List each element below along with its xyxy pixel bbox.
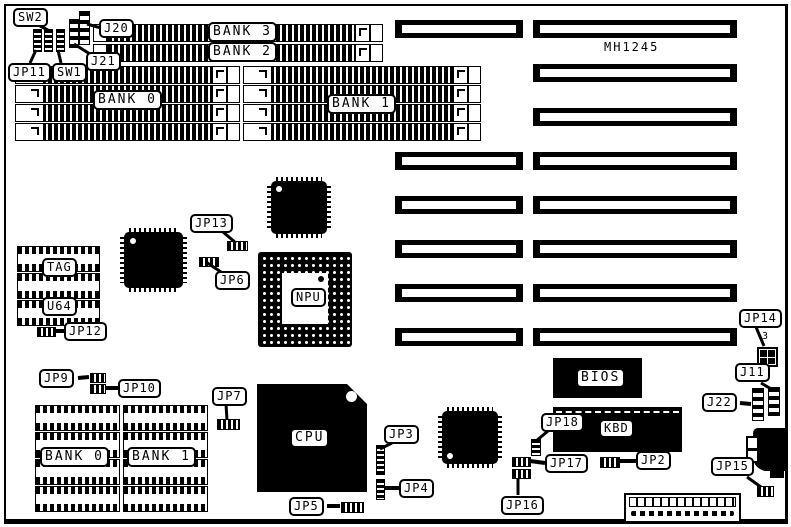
jumper-pad: [760, 350, 767, 357]
isa-slot-key: [402, 25, 516, 33]
qfp-pins: [327, 186, 331, 229]
pin1-dot: [276, 186, 282, 192]
isa-slot-key: [402, 157, 516, 165]
isa-slot-short-1: [395, 20, 523, 38]
callout-j11: J11: [735, 363, 770, 382]
jumper-jp16-pins: [512, 469, 531, 479]
jumper-jp4-pins: [376, 479, 385, 500]
isa-slot-key: [540, 245, 730, 253]
isa-slot-key: [540, 201, 730, 209]
dip-chip-row: [123, 486, 208, 512]
motherboard-diagram: MH1245 BANK 3 BANK 2 BANK 0 BANK 1 SW2 J…: [0, 0, 791, 527]
label-bank3: BANK 3: [208, 22, 277, 42]
callout-jp2: JP2: [636, 451, 671, 470]
isa-slot-long-2: [533, 64, 737, 82]
isa-slot-key: [402, 333, 516, 341]
callout-j20: J20: [99, 19, 134, 38]
callout-jp12: JP12: [64, 322, 107, 341]
power-solder-dots: [631, 511, 734, 516]
callout-jp7: JP7: [212, 387, 247, 406]
callout-sw2: SW2: [13, 8, 48, 27]
jumper-jp13-pins: [227, 241, 248, 251]
pin1-dot: [130, 238, 136, 244]
label-kbd: KBD: [599, 419, 634, 438]
label-tag: TAG: [42, 258, 77, 277]
pin1-dot: [346, 391, 357, 402]
jp14-pin3-text: 3: [762, 331, 770, 342]
callout-jp15: JP15: [711, 457, 754, 476]
callout-jp17: JP17: [545, 454, 588, 473]
isa-slot-key: [540, 113, 730, 121]
isa-slot-long-7: [533, 284, 737, 302]
label-bank2: BANK 2: [208, 42, 277, 62]
simm-end-cap: [226, 105, 239, 121]
callout-sw1: SW1: [52, 63, 87, 82]
simm-slot-bank0-row4: [15, 123, 240, 141]
callout-jp10: JP10: [118, 379, 161, 398]
callout-j22: J22: [702, 393, 737, 412]
qfp-pins: [183, 237, 187, 283]
din-pin-tab: [746, 436, 759, 450]
dip-chip-row: [35, 486, 120, 512]
isa-slot-long-4: [533, 152, 737, 170]
jumper-jp6-pins: [199, 257, 219, 267]
simm-latch: [256, 105, 273, 121]
simm-end-cap: [226, 124, 239, 140]
simm-latch: [28, 86, 45, 102]
pin1-dot: [447, 453, 453, 459]
callout-jp11: JP11: [8, 63, 51, 82]
isa-slot-key: [402, 201, 516, 209]
callout-jp3: JP3: [384, 425, 419, 444]
callout-jp18: JP18: [541, 413, 584, 432]
callout-jp16: JP16: [501, 496, 544, 515]
isa-slot-long-1: [533, 20, 737, 38]
jumper-jp5-pins: [341, 502, 364, 513]
isa-slot-long-5: [533, 196, 737, 214]
jumper-jp15-pins: [757, 486, 774, 497]
jumper-jp2-pins: [600, 457, 620, 468]
isa-slot-key: [540, 289, 730, 297]
label-cpu: CPU: [290, 428, 329, 448]
callout-jp13: JP13: [190, 214, 233, 233]
isa-slot-key: [402, 289, 516, 297]
label-bank0-top: BANK 0: [93, 90, 162, 110]
simm-end-cap: [467, 105, 480, 121]
isa-slot-key: [540, 69, 730, 77]
label-u64: U64: [42, 297, 77, 316]
isa-slot-short-3: [395, 196, 523, 214]
simm-latch: [256, 67, 273, 83]
qfp-pins: [498, 416, 502, 459]
isa-slot-long-3: [533, 108, 737, 126]
isa-slot-short-6: [395, 328, 523, 346]
dip-chip-row: [35, 405, 120, 431]
jumper-jp11-pins: [33, 29, 42, 52]
simm-end-cap: [369, 25, 382, 41]
board-model-text: MH1245: [604, 40, 659, 54]
callout-jp4: JP4: [399, 479, 434, 498]
jumper-jp9-pins: [90, 373, 106, 383]
simm-latch: [256, 86, 273, 102]
simm-end-cap: [467, 67, 480, 83]
callout-jp9: JP9: [39, 369, 74, 388]
simm-slot-bank1-row1: [243, 66, 481, 84]
isa-slot-short-5: [395, 284, 523, 302]
connector-j11-pins: [768, 387, 780, 416]
callout-j21: J21: [86, 52, 121, 71]
dip-chip-row: [123, 405, 208, 431]
connector-j20-pins: [79, 11, 90, 45]
qfp-chipset-3: [438, 407, 502, 468]
label-npu: NPU: [291, 288, 326, 307]
simm-latch: [28, 105, 45, 121]
din-connector-base: [770, 470, 784, 478]
qfp-pins: [129, 288, 178, 292]
connector-j21-pins: [69, 19, 79, 48]
callout-jp6: JP6: [215, 271, 250, 290]
callout-jp14: JP14: [739, 309, 782, 328]
connector-j22-pins: [752, 388, 764, 421]
isa-slot-key: [540, 157, 730, 165]
simm-latch: [28, 124, 45, 140]
power-pin-row: [629, 497, 736, 507]
label-bank1-top: BANK 1: [327, 94, 396, 114]
callout-jp5: JP5: [289, 497, 324, 516]
isa-slot-long-8: [533, 328, 737, 346]
jumper-jp17-pins: [512, 457, 531, 467]
switch-sw2-pins: [44, 29, 53, 52]
label-bios: BIOS: [576, 368, 625, 388]
power-connector: [624, 493, 741, 523]
isa-slot-key: [540, 333, 730, 341]
simm-end-cap: [369, 45, 382, 61]
simm-latch: [256, 124, 273, 140]
simm-end-cap: [467, 124, 480, 140]
jumper-pad: [768, 358, 775, 365]
label-bank0-bottom: BANK 0: [40, 447, 109, 467]
jumper-jp18-pins: [531, 439, 541, 456]
qfp-chipset-1: [120, 228, 187, 292]
simm-slot-bank1-row4: [243, 123, 481, 141]
label-bank1-bottom: BANK 1: [127, 447, 196, 467]
qfp-pins: [447, 464, 493, 468]
qfp-chipset-2: [267, 177, 331, 238]
qfp-pins: [276, 234, 322, 238]
isa-slot-short-4: [395, 240, 523, 258]
jumper-pad: [768, 350, 775, 357]
jumper-jp10-pins: [90, 384, 106, 394]
simm-end-cap: [226, 67, 239, 83]
jumper-jp7-pins: [217, 419, 240, 430]
isa-slot-long-6: [533, 240, 737, 258]
switch-sw1-pins: [56, 29, 65, 52]
isa-slot-key: [540, 25, 730, 33]
jumper-jp3-pins: [376, 445, 385, 475]
simm-end-cap: [226, 86, 239, 102]
jumper-jp12-pins: [37, 327, 56, 337]
pin1-dot: [318, 276, 324, 282]
isa-slot-short-2: [395, 152, 523, 170]
simm-end-cap: [467, 86, 480, 102]
isa-slot-key: [402, 245, 516, 253]
